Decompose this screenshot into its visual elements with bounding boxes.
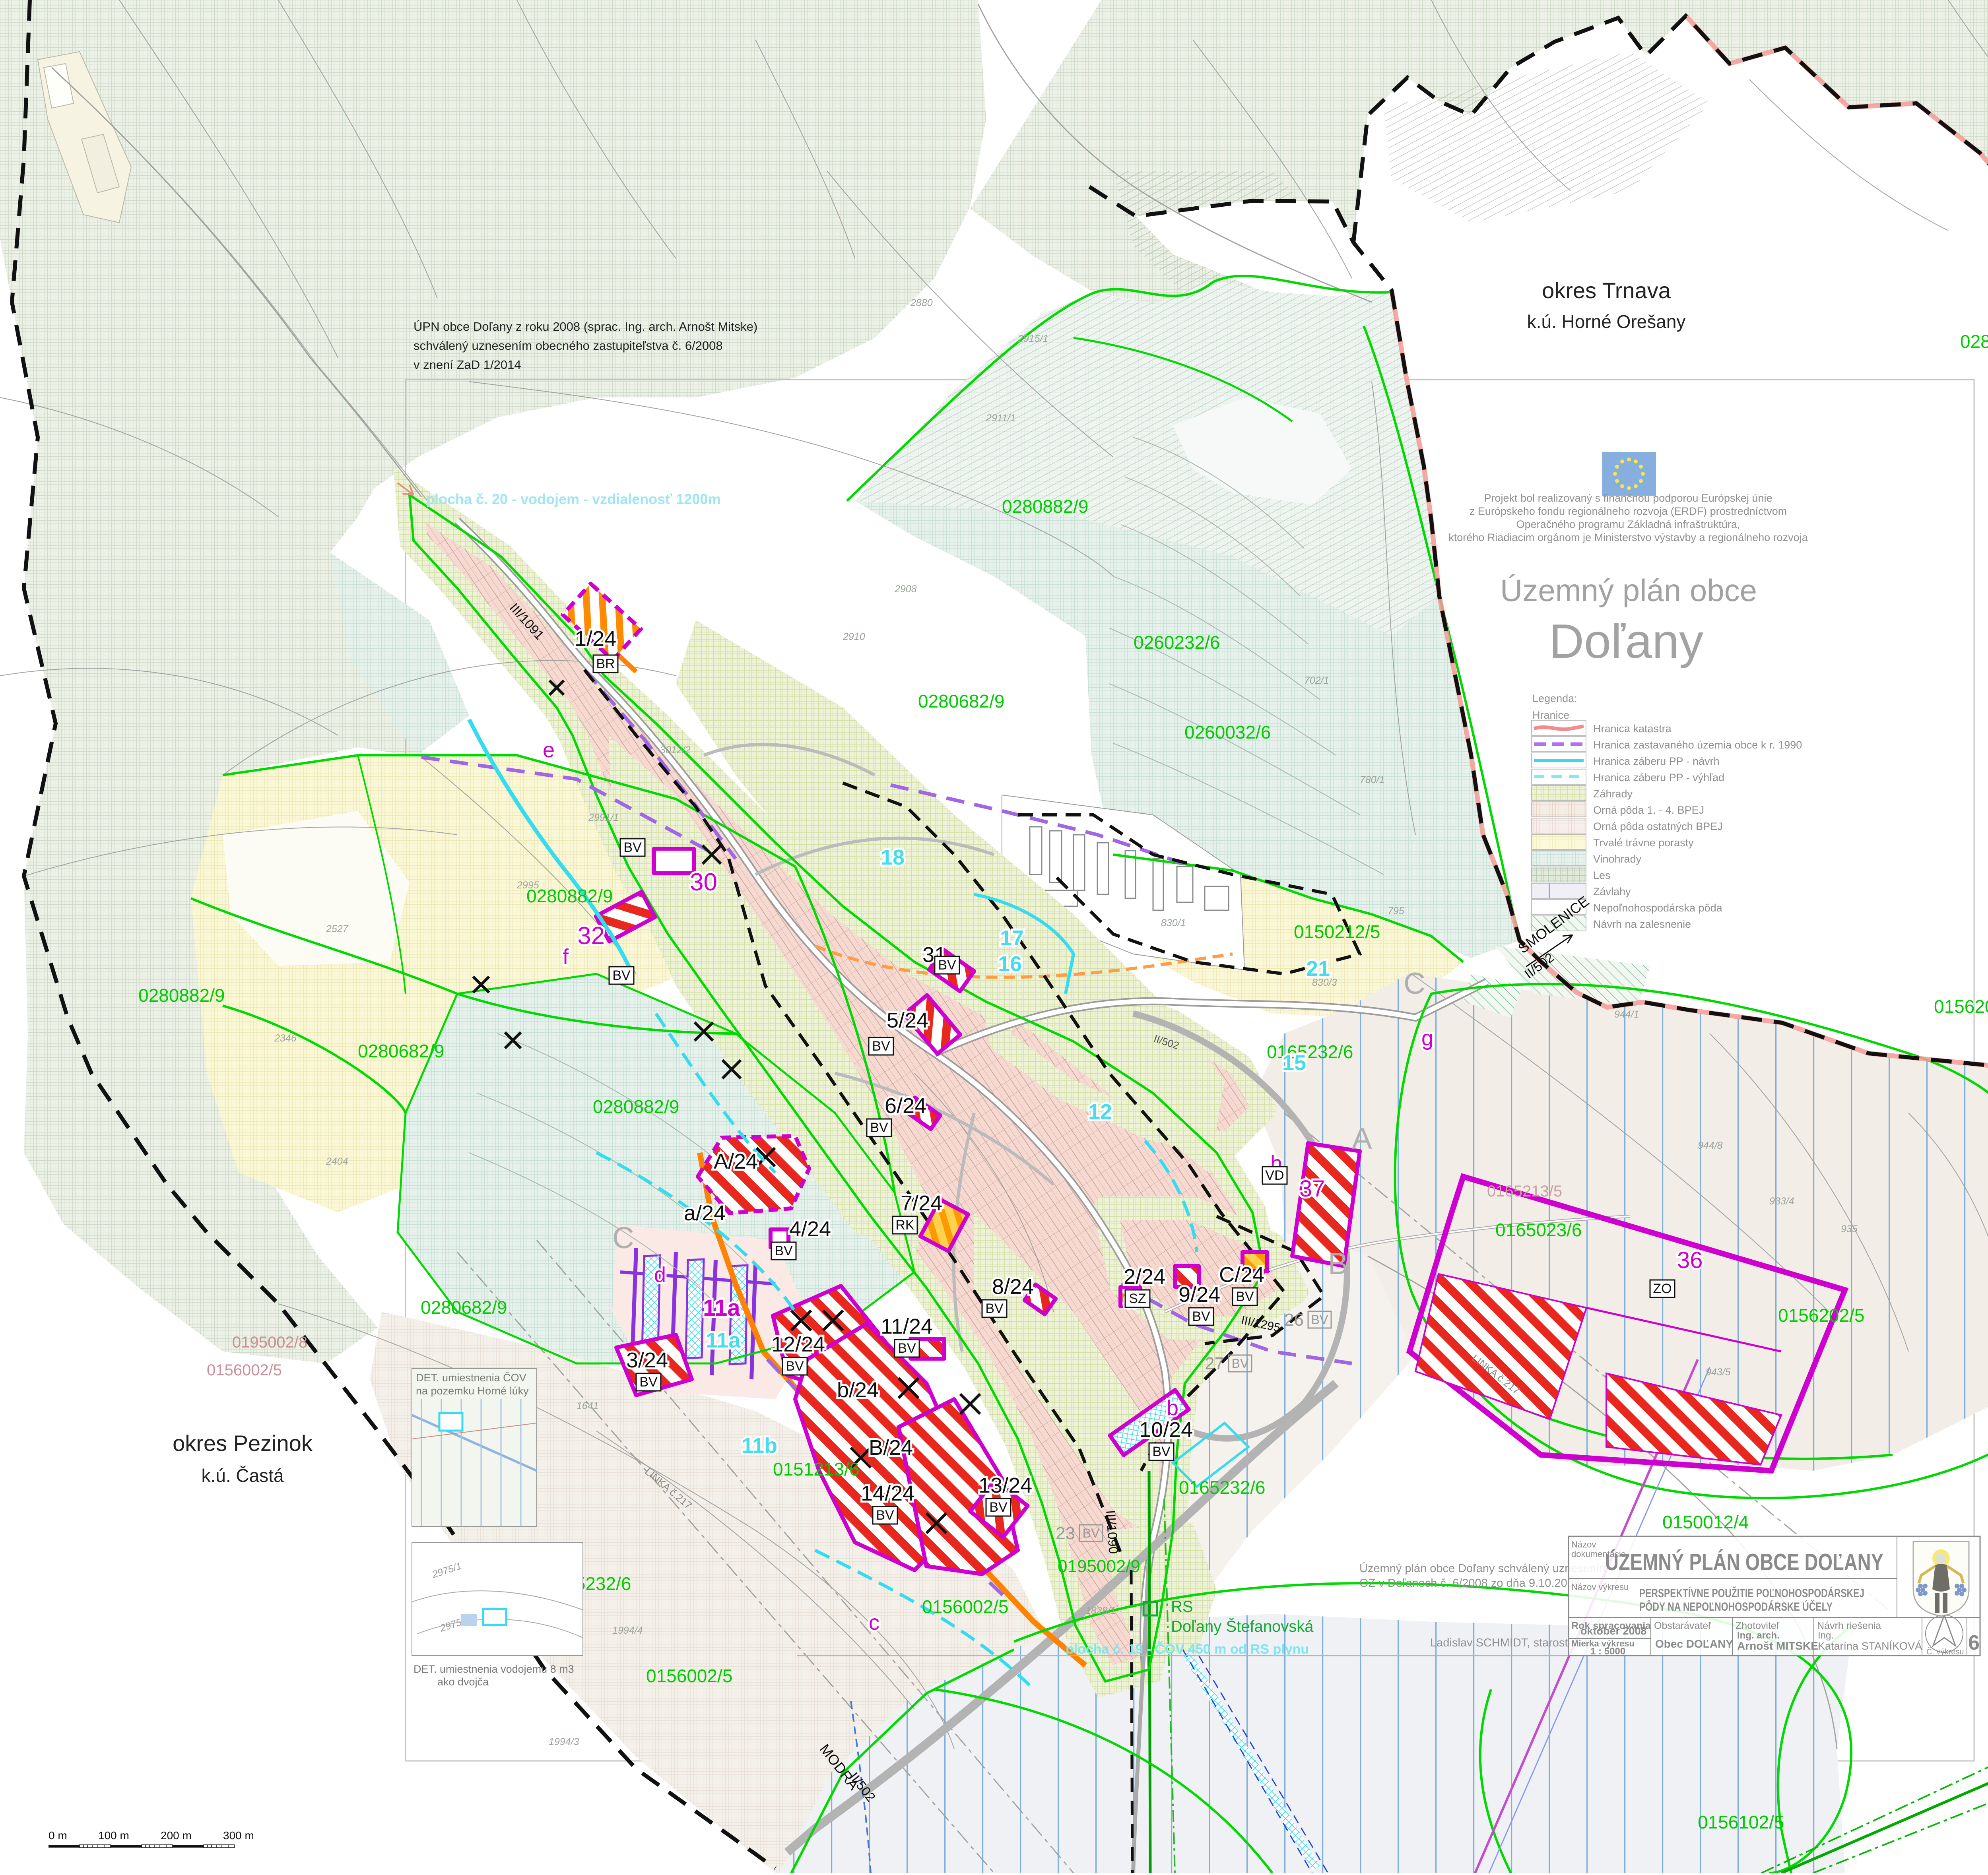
svg-text:BV: BV <box>1236 1289 1254 1304</box>
svg-text:2346: 2346 <box>274 1033 297 1044</box>
svg-text:16: 16 <box>998 952 1022 976</box>
svg-text:780/1: 780/1 <box>1360 774 1385 785</box>
svg-text:DET. umiestnenia vodojemu 8 m3: DET. umiestnenia vodojemu 8 m3 <box>414 1663 574 1675</box>
svg-text:1 : 5000: 1 : 5000 <box>1590 1646 1625 1657</box>
svg-text:830/1: 830/1 <box>1161 917 1186 929</box>
svg-text:0165232/6: 0165232/6 <box>1267 1041 1353 1062</box>
svg-text:30: 30 <box>690 869 717 896</box>
svg-text:Názov výkresu: Názov výkresu <box>1571 1582 1629 1592</box>
svg-text:9/24: 9/24 <box>1178 1283 1220 1307</box>
svg-text:0150012/4: 0150012/4 <box>1662 1512 1749 1532</box>
svg-text:830/3: 830/3 <box>1312 977 1337 988</box>
svg-text:Hranica zastavaného územia obc: Hranica zastavaného územia obce k r. 199… <box>1593 739 1802 751</box>
svg-text:BV: BV <box>623 840 642 855</box>
svg-text:0280882/9: 0280882/9 <box>138 985 225 1006</box>
svg-text:Hranica záberu PP - návrh: Hranica záberu PP - návrh <box>1593 755 1720 767</box>
svg-text:2527: 2527 <box>326 923 349 935</box>
svg-text:2911/1: 2911/1 <box>986 413 1016 424</box>
svg-text:1994/4: 1994/4 <box>612 1625 643 1636</box>
svg-text:Katarína STANÍKOVÁ: Katarína STANÍKOVÁ <box>1818 1640 1922 1652</box>
svg-text:1828/1: 1828/1 <box>1085 1605 1116 1616</box>
svg-text:b/24: b/24 <box>837 1378 879 1402</box>
svg-text:11b: 11b <box>742 1434 777 1458</box>
svg-text:plocha č. 19 - ČOV 450 m od RS: plocha č. 19 - ČOV 450 m od RS plynu <box>1066 1641 1309 1657</box>
svg-text:0156202/5: 0156202/5 <box>1778 1305 1864 1326</box>
svg-text:702/1: 702/1 <box>1304 675 1329 686</box>
svg-text:23: 23 <box>1056 1524 1075 1543</box>
svg-text:Orná pôda ostatných BPEJ: Orná pôda ostatných BPEJ <box>1593 820 1723 832</box>
svg-text:v znení ZaD 1/2014: v znení ZaD 1/2014 <box>414 358 521 372</box>
svg-text:4/24: 4/24 <box>789 1217 831 1241</box>
svg-text:5/24: 5/24 <box>887 1008 928 1032</box>
svg-text:1994/3: 1994/3 <box>549 1736 579 1747</box>
svg-text:15: 15 <box>1282 1051 1306 1075</box>
svg-text:okres Trnava: okres Trnava <box>1542 278 1671 303</box>
svg-text:Hranice: Hranice <box>1532 709 1569 721</box>
svg-text:b: b <box>1167 1396 1178 1420</box>
svg-text:200 m: 200 m <box>161 1829 192 1842</box>
svg-text:17: 17 <box>1000 926 1024 950</box>
svg-text:11a: 11a <box>706 1328 741 1352</box>
svg-text:Obstarávateľ: Obstarávateľ <box>1654 1620 1711 1631</box>
svg-text:Č. výkresu: Č. výkresu <box>1926 1647 1964 1656</box>
svg-text:BV: BV <box>1083 1526 1100 1540</box>
svg-text:BV: BV <box>1311 1313 1328 1327</box>
svg-text:0 m: 0 m <box>49 1829 67 1842</box>
svg-text:37: 37 <box>1299 1176 1325 1202</box>
svg-text:Doľany Štefanovská: Doľany Štefanovská <box>1171 1617 1314 1635</box>
svg-text:d: d <box>654 1263 666 1287</box>
svg-text:6/24: 6/24 <box>885 1094 926 1118</box>
svg-text:36: 36 <box>1677 1247 1703 1273</box>
svg-text:Hranica záberu PP - výhľad: Hranica záberu PP - výhľad <box>1593 772 1724 783</box>
svg-text:PÔDY NA NEPOĽNOHOSPODÁRSKE ÚČE: PÔDY NA NEPOĽNOHOSPODÁRSKE ÚČELY <box>1639 1600 1833 1613</box>
svg-text:BV: BV <box>985 1301 1004 1316</box>
svg-text:A/24: A/24 <box>714 1150 758 1173</box>
svg-text:933/4: 933/4 <box>1769 1196 1794 1207</box>
svg-text:BV: BV <box>938 958 956 973</box>
svg-text:0260232/6: 0260232/6 <box>1134 632 1220 653</box>
svg-text:2915/1: 2915/1 <box>1017 333 1048 344</box>
svg-text:g: g <box>1421 1026 1433 1050</box>
svg-text:ÚPN obce Doľany z roku 2008 (s: ÚPN obce Doľany z roku 2008 (sprac. Ing.… <box>414 320 757 334</box>
svg-text:BV: BV <box>876 1508 894 1523</box>
svg-text:2995: 2995 <box>516 880 539 891</box>
svg-text:e: e <box>543 738 555 762</box>
svg-text:0280682/9: 0280682/9 <box>1960 331 1988 352</box>
svg-text:26: 26 <box>1284 1310 1304 1330</box>
svg-text:1/24: 1/24 <box>575 627 616 651</box>
svg-text:18: 18 <box>881 845 905 869</box>
svg-text:Les: Les <box>1593 869 1611 881</box>
svg-text:Orná pôda 1. - 4. BPEJ: Orná pôda 1. - 4. BPEJ <box>1593 804 1704 816</box>
svg-text:BV: BV <box>1232 1356 1249 1371</box>
svg-text:a/24: a/24 <box>684 1201 726 1225</box>
svg-text:943/5: 943/5 <box>1706 1367 1731 1378</box>
svg-text:27: 27 <box>1205 1354 1224 1373</box>
svg-text:Názov: Názov <box>1571 1540 1596 1549</box>
svg-text:0165213/5: 0165213/5 <box>1487 1183 1562 1200</box>
svg-text:BV: BV <box>898 1341 916 1356</box>
svg-text:f: f <box>563 945 569 969</box>
svg-text:Legenda:: Legenda: <box>1532 692 1577 704</box>
svg-text:schválený uznesením obecného z: schválený uznesením obecného zastupiteľs… <box>414 339 723 353</box>
svg-text:0151213/6: 0151213/6 <box>773 1459 859 1479</box>
svg-text:0165232/6: 0165232/6 <box>1179 1477 1265 1498</box>
svg-text:0195002/8: 0195002/8 <box>232 1334 307 1351</box>
svg-text:Návrh riešenia: Návrh riešenia <box>1817 1620 1881 1631</box>
svg-text:11a: 11a <box>703 1295 740 1321</box>
svg-text:okres Pezinok: okres Pezinok <box>173 1431 313 1456</box>
svg-text:8/24: 8/24 <box>992 1275 1034 1299</box>
svg-text:795: 795 <box>1388 906 1404 917</box>
svg-text:Ing. arch.: Ing. arch. <box>1737 1630 1780 1641</box>
svg-text:Návrh na zalesnenie: Návrh na zalesnenie <box>1593 918 1691 930</box>
svg-text:10/24: 10/24 <box>1139 1418 1193 1442</box>
svg-text:Doľany: Doľany <box>1549 614 1703 668</box>
svg-text:ktorého Riadiacim orgánom je M: ktorého Riadiacim orgánom je Ministerstv… <box>1448 531 1808 543</box>
svg-text:na pozemku Horné lúky: na pozemku Horné lúky <box>416 1385 529 1397</box>
svg-text:BV: BV <box>1152 1444 1171 1459</box>
svg-text:Ing.: Ing. <box>1818 1630 1834 1641</box>
svg-text:0280882/9: 0280882/9 <box>593 1096 679 1117</box>
svg-text:Hranica katastra: Hranica katastra <box>1593 723 1672 735</box>
svg-text:C/24: C/24 <box>1219 1263 1264 1287</box>
svg-text:1641: 1641 <box>577 1400 599 1412</box>
svg-text:Závlahy: Závlahy <box>1593 886 1631 898</box>
svg-text:Projekt bol realizovaný s fina: Projekt bol realizovaný s finančnou podp… <box>1484 492 1773 504</box>
svg-text:Vinohrady: Vinohrady <box>1593 853 1642 865</box>
svg-text:Operačného programu Základná i: Operačného programu Základná infraštrukt… <box>1516 518 1740 530</box>
svg-text:BV: BV <box>870 1120 888 1135</box>
svg-text:Nepoľnohospodárska pôda: Nepoľnohospodárska pôda <box>1593 902 1723 914</box>
svg-text:BV: BV <box>872 1039 890 1054</box>
svg-text:0156002/5: 0156002/5 <box>207 1361 282 1379</box>
svg-text:VD: VD <box>1265 1168 1284 1183</box>
svg-text:100 m: 100 m <box>98 1829 129 1842</box>
svg-text:C: C <box>1404 967 1425 1001</box>
svg-text:C: C <box>612 1221 634 1255</box>
svg-text:BR: BR <box>596 656 615 671</box>
svg-text:3/24: 3/24 <box>626 1348 668 1372</box>
svg-text:október 2008: október 2008 <box>1580 1625 1647 1637</box>
svg-text:2991/1: 2991/1 <box>588 812 619 823</box>
svg-text:13/24: 13/24 <box>978 1474 1032 1497</box>
svg-text:2910: 2910 <box>843 631 865 642</box>
svg-text:0156102/5: 0156102/5 <box>1698 1812 1784 1832</box>
svg-text:0280682/9: 0280682/9 <box>358 1041 444 1061</box>
svg-text:300 m: 300 m <box>223 1829 254 1842</box>
svg-text:RK: RK <box>895 1218 914 1233</box>
svg-text:0150212/5: 0150212/5 <box>1294 921 1380 942</box>
svg-text:3012/2: 3012/2 <box>660 745 691 756</box>
svg-text:0260032/6: 0260032/6 <box>1184 722 1271 743</box>
svg-text:Trvalé trávne porasty: Trvalé trávne porasty <box>1593 837 1694 849</box>
svg-text:2880: 2880 <box>910 297 933 308</box>
svg-text:12: 12 <box>1088 1100 1112 1124</box>
svg-text:0195002/9: 0195002/9 <box>1058 1557 1140 1576</box>
svg-text:SZ: SZ <box>1129 1291 1146 1306</box>
svg-text:0156002/5: 0156002/5 <box>646 1666 732 1686</box>
svg-text:12/24: 12/24 <box>771 1332 825 1356</box>
svg-text:Arnošt MITSKE: Arnošt MITSKE <box>1737 1640 1818 1652</box>
svg-text:944/1: 944/1 <box>1614 1009 1639 1020</box>
svg-text:A: A <box>1352 1122 1372 1156</box>
svg-text:14/24: 14/24 <box>861 1481 914 1505</box>
svg-text:11/24: 11/24 <box>881 1315 933 1338</box>
svg-text:ÚZEMNÝ PLÁN OBCE DOĽANY: ÚZEMNÝ PLÁN OBCE DOĽANY <box>1605 1549 1883 1575</box>
svg-text:BV: BV <box>989 1500 1008 1515</box>
svg-text:z Európskeho fondu regionálneh: z Európskeho fondu regionálneho rozvoja … <box>1470 505 1787 517</box>
svg-text:Územný plán obce: Územný plán obce <box>1500 573 1757 608</box>
svg-text:0156002/5: 0156002/5 <box>922 1596 1008 1617</box>
svg-text:2/24: 2/24 <box>1124 1265 1165 1289</box>
svg-text:7/24: 7/24 <box>901 1191 942 1215</box>
svg-text:0156202/5: 0156202/5 <box>1934 996 1988 1017</box>
svg-text:944/8: 944/8 <box>1698 1140 1723 1151</box>
svg-text:2404: 2404 <box>326 1156 348 1167</box>
svg-text:RS: RS <box>1171 1598 1193 1615</box>
svg-text:0280882/9: 0280882/9 <box>526 886 613 906</box>
svg-text:BV: BV <box>775 1243 793 1258</box>
svg-text:BV: BV <box>1192 1309 1210 1324</box>
svg-text:0165023/6: 0165023/6 <box>1495 1220 1582 1240</box>
svg-text:0280682/9: 0280682/9 <box>918 691 1004 712</box>
svg-text:0280882/9: 0280882/9 <box>1002 496 1088 517</box>
svg-text:935: 935 <box>1841 1224 1858 1235</box>
svg-text:BV: BV <box>786 1359 804 1374</box>
svg-text:BV: BV <box>639 1375 658 1390</box>
svg-text:III/1090: III/1090 <box>1103 1510 1121 1554</box>
svg-text:BV: BV <box>612 968 631 983</box>
svg-text:c: c <box>869 1611 879 1635</box>
svg-text:ako dvojča: ako dvojča <box>437 1676 489 1688</box>
svg-text:Zhotoviteľ: Zhotoviteľ <box>1736 1620 1780 1631</box>
svg-text:6: 6 <box>1968 1631 1980 1654</box>
svg-text:OZ v Doľanoch č. 6/2008 zo dňa: OZ v Doľanoch č. 6/2008 zo dňa 9.10.2008 <box>1359 1577 1580 1590</box>
svg-text:plocha č. 20 - vodojem - vzdia: plocha č. 20 - vodojem - vzdialenosť 120… <box>426 491 721 507</box>
svg-text:0280682/9: 0280682/9 <box>421 1297 507 1318</box>
svg-text:DET. umiestnenia ČOV: DET. umiestnenia ČOV <box>416 1371 526 1384</box>
svg-text:32: 32 <box>577 922 605 950</box>
svg-text:ZO: ZO <box>1653 1281 1672 1296</box>
svg-text:k.ú. Horné Orešany: k.ú. Horné Orešany <box>1527 311 1686 332</box>
svg-text:Záhrady: Záhrady <box>1593 788 1633 800</box>
svg-text:k.ú. Častá: k.ú. Častá <box>201 1465 284 1486</box>
svg-text:B: B <box>1328 1247 1348 1281</box>
svg-text:Obec DOĽANY: Obec DOĽANY <box>1655 1638 1733 1650</box>
svg-text:PERSPEKTÍVNE POUŽITIE POĽNOHOS: PERSPEKTÍVNE POUŽITIE POĽNOHOSPODÁRSKEJ <box>1639 1586 1864 1600</box>
svg-text:B/24: B/24 <box>869 1436 913 1460</box>
svg-text:2908: 2908 <box>894 584 917 595</box>
